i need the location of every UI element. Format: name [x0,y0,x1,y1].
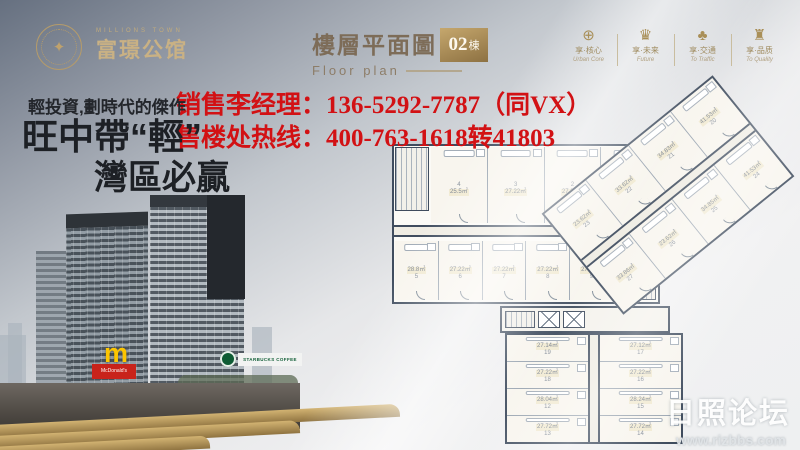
door-arc-icon [516,214,525,223]
bed-icon [618,364,663,368]
watermark-url: www.rizbbs.com [666,432,790,448]
slogan-big-2: 灣區必贏 [94,150,230,199]
unit-cell: 27.22㎡ 16 [600,362,681,389]
badge-label-en: Future [617,57,674,63]
building-number-badge: 02 棟 [440,28,488,62]
bed-icon [405,244,429,251]
elevator-core [500,306,670,333]
feature-badge: ⊕ 享·核心 Urban Core [560,26,617,63]
title-underline [406,70,462,72]
unit-label: 41.53㎡ 20 [699,107,726,132]
unit-number: 8 [546,274,549,281]
bathroom-icon [577,364,586,372]
south-wing: 27.14㎡ 19 27.22㎡ 18 [505,333,683,444]
bathroom-icon [471,243,480,251]
unit-column-left: 27.14㎡ 19 27.22㎡ 18 [507,335,588,442]
bed-icon [492,244,516,251]
unit-label: 33.86㎡ 27 [615,263,642,288]
unit-area: 25.5㎡ [449,189,469,196]
unit-cell: 25.5㎡ 4 [431,147,488,223]
unit-label: 23.62㎡ 26 [657,229,684,254]
door-arc-icon [459,214,468,223]
unit-area: 27.22㎡ [629,370,652,377]
unit-number: 22 [625,186,635,196]
staircase [505,311,535,328]
bathroom-icon [577,337,586,345]
unit-number: 14 [637,431,644,438]
unit-number: 6 [459,274,462,281]
unit-label: 27.22㎡ 3 [504,182,527,196]
unit-number: 18 [544,377,551,384]
bed-icon [525,391,570,395]
bed-icon [536,244,560,251]
unit-label: 33.62㎡ 22 [614,175,641,200]
unit-cell: 27.22㎡ 7 [483,241,527,300]
corridor [588,335,600,442]
unit-area: 27.12㎡ [629,343,652,350]
unit-label: 27.22㎡ 8 [536,267,559,281]
badge-label-cn: 享·核心 [560,45,617,56]
mcdonalds-arches-icon: m [92,343,140,363]
unit-label: 41.53㎡ 24 [742,160,769,185]
badge-label-en: Urban Core [560,57,617,63]
unit-label: 34.83㎡ 21 [656,141,683,166]
unit-number: 7 [502,274,505,281]
unit-number: 24 [752,171,762,181]
starbucks-board: STARBUCKS COFFEE [238,353,302,366]
unit-area: 28.04㎡ [536,397,559,404]
unit-cell: 27.22㎡ 3 [488,147,545,223]
door-arc-icon [681,248,694,261]
unit-label: 28.04㎡ 12 [536,397,559,411]
unit-area: 27.22㎡ [449,267,472,274]
unit-cell: 27.22㎡ 18 [507,362,588,389]
door-arc-icon [592,291,601,300]
background-tower [36,251,68,391]
unit-number: 5 [415,274,418,281]
unit-label: 27.72㎡ 13 [536,424,559,438]
badge-label-cn: 享·品质 [731,45,788,56]
crown-icon: ♛ [617,27,674,44]
starbucks-logo-icon [220,351,236,367]
unit-area: 28.8㎡ [407,267,427,274]
unit-cell: 27.22㎡ 8 [526,241,570,300]
unit-number: 25 [710,205,720,215]
unit-label: 27.22㎡ 18 [536,370,559,384]
unit-area: 27.72㎡ [629,424,652,431]
bathroom-icon [577,418,586,426]
unit-label: 27.12㎡ 17 [629,343,652,357]
brand-text: MILLIONS TOWN 富璟公馆 [96,28,188,64]
badge-label-en: To Quality [731,57,788,63]
unit-area: 27.14㎡ [536,343,559,350]
bed-icon [448,244,472,251]
bathroom-icon [670,337,679,345]
unit-label: 23.62㎡ 23 [572,210,599,235]
hotline-contact-line: 售楼处热线：400-763-1618转41803 [176,118,555,154]
unit-number: 12 [544,404,551,411]
unit-cell: 27.12㎡ 17 [600,335,681,362]
unit-label: 27.72㎡ 14 [629,424,652,438]
unit-cell: 28.8㎡ 5 [395,241,439,300]
mcdonalds-board: McDonald's [92,364,136,379]
unit-label: 27.22㎡ 16 [629,370,652,384]
bed-icon [525,418,570,422]
feature-badge: ♛ 享·未来 Future [617,26,674,63]
unit-area: 27.22㎡ [536,370,559,377]
door-arc-icon [765,180,778,193]
bed-icon [618,337,663,341]
door-arc-icon [416,291,425,300]
unit-cell: 27.22㎡ 6 [439,241,483,300]
unit-number: 4 [457,182,460,189]
unit-number: 3 [514,182,517,189]
unit-label: 27.14㎡ 19 [536,343,559,357]
unit-number: 15 [637,404,644,411]
unit-area: 27.22㎡ [492,267,515,274]
flyer-canvas: ✦ MILLIONS TOWN 富璟公馆 樓層平面圖 Floor plan 02… [0,0,800,450]
unit-label: 28.24㎡ 15 [629,397,652,411]
title-en-row: Floor plan [312,63,462,78]
unit-number: 13 [544,431,551,438]
title-en: Floor plan [312,63,400,78]
bathroom-icon [427,243,436,251]
starbucks-sign: STARBUCKS COFFEE [220,351,302,367]
unit-label: 27.22㎡ 6 [449,267,472,281]
seal-star-icon: ✦ [53,38,66,56]
watermark-title: 日照论坛 [666,390,790,432]
bathroom-icon [589,149,598,157]
tree-icon: ♣ [674,27,731,44]
door-arc-icon [504,291,513,300]
building-icon: ♜ [731,27,788,44]
unit-number: 17 [637,350,644,357]
staircase [395,147,429,211]
unit-number: 21 [667,152,677,162]
badge-label-cn: 享·交通 [674,45,731,56]
tower-crown [207,195,245,299]
watermark: 日照论坛 www.rizbbs.com [666,390,790,448]
bathroom-icon [577,391,586,399]
building-rendering: m McDonald's STARBUCKS COFFEE [0,185,300,450]
bathroom-icon [670,364,679,372]
unit-label: 25.5㎡ 4 [449,182,469,196]
bed-icon [618,418,663,422]
door-arc-icon [639,283,652,296]
badge-label-cn: 享·未来 [617,45,674,56]
elevator [563,311,585,328]
door-arc-icon [460,291,469,300]
unit-cell: 28.04㎡ 12 [507,389,588,416]
unit-cell: 27.14㎡ 19 [507,335,588,362]
unit-number: 23 [583,220,593,230]
unit-area: 28.24㎡ [629,397,652,404]
bed-icon [640,122,667,146]
unit-area: 27.22㎡ [504,189,527,196]
door-arc-icon [723,214,736,227]
circle-cross-icon: ⊕ [560,27,617,44]
unit-cell: 27.72㎡ 13 [507,416,588,442]
bed-icon [557,150,588,157]
bed-icon [618,391,663,395]
elevator [538,311,560,328]
unit-label: 34.85㎡ 25 [699,195,726,220]
mcdonalds-sign: m McDonald's [92,343,140,379]
brand-name-cn: 富璟公馆 [96,34,188,64]
unit-area: 27.22㎡ [536,267,559,274]
building-suffix: 棟 [469,37,480,53]
unit-number: 19 [544,350,551,357]
bathroom-icon [514,243,523,251]
unit-area: 27.72㎡ [536,424,559,431]
unit-number: 20 [709,118,719,128]
unit-number: 27 [626,273,636,283]
feature-badge: ♜ 享·品质 To Quality [731,26,788,63]
unit-number: 16 [637,377,644,384]
door-arc-icon [548,291,557,300]
feature-badge: ♣ 享·交通 To Traffic [674,26,731,63]
unit-label: 28.8㎡ 5 [407,267,427,281]
building-number: 02 [449,34,468,56]
unit-label: 27.22㎡ 7 [492,267,515,281]
feature-badges: ⊕ 享·核心 Urban Core ♛ 享·未来 Future ♣ 享·交通 T… [560,26,788,63]
bed-icon [525,364,570,368]
sales-contact-line: 销售李经理：136-5292-7787（同VX） [176,85,591,121]
bed-icon [525,337,570,341]
brand-seal-icon: ✦ [36,24,82,70]
unit-number: 26 [668,239,678,249]
badge-label-en: To Traffic [674,57,731,63]
